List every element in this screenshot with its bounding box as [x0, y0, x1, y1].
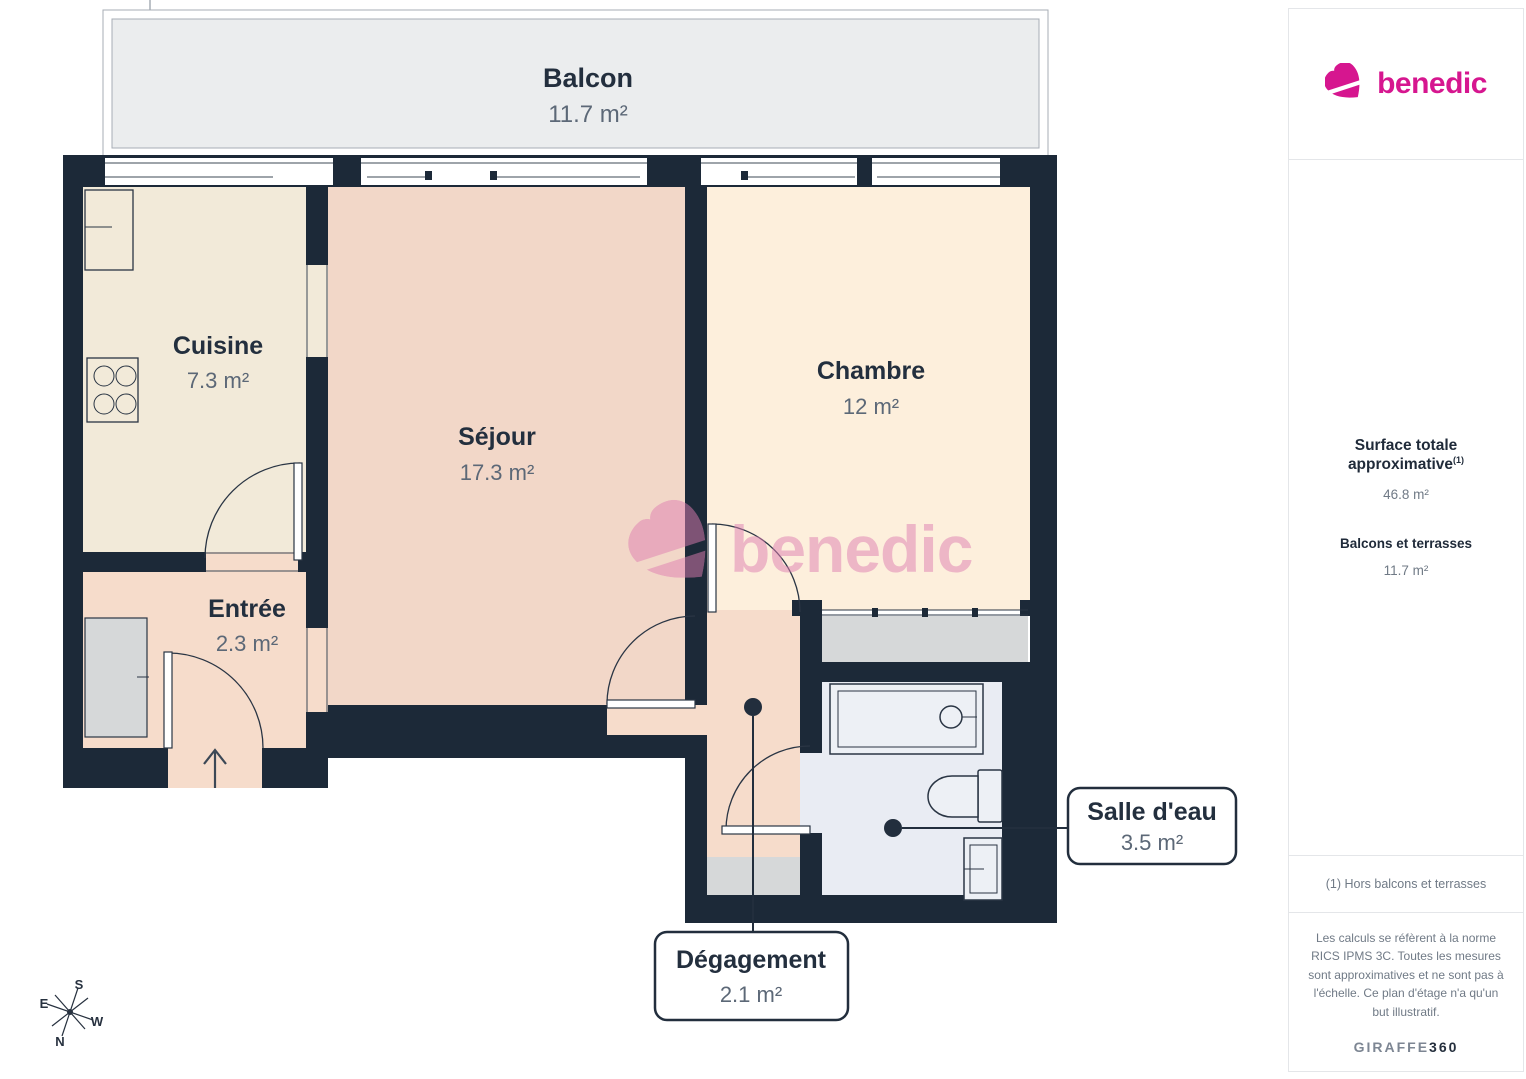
floorplan-page: Balcon 11.7 m²: [0, 0, 1526, 1079]
floorplan-drawing: Balcon 11.7 m²: [0, 0, 1288, 1079]
wardrobe-chambre: [822, 616, 1028, 662]
balcony-label: Balcon: [543, 63, 633, 93]
window-cuisine: [105, 158, 333, 185]
brand-header: benedic: [1289, 9, 1523, 160]
balcony-area-label: 11.7 m²: [548, 101, 628, 128]
bathtub-icon: [830, 684, 983, 754]
salle-deau-label: Salle d'eau: [1087, 798, 1217, 826]
stove-icon: [87, 358, 138, 422]
sejour-area: 17.3 m²: [460, 460, 535, 485]
compass-icon: S E W N: [40, 977, 104, 1049]
benedic-logo-icon: [1325, 63, 1367, 105]
salle-deau-area: 3.5 m²: [1121, 830, 1183, 855]
cuisine-area: 7.3 m²: [187, 368, 249, 393]
entree-label: Entrée: [208, 595, 286, 623]
footnote: (1) Hors balcons et terrasses: [1289, 856, 1523, 913]
compass-e: E: [40, 996, 49, 1011]
legal-section: Les calculs se réfèrent à la norme RICS …: [1289, 913, 1523, 1071]
entree-area: 2.3 m²: [216, 631, 278, 656]
chambre-label: Chambre: [817, 357, 925, 385]
cuisine-label: Cuisine: [173, 332, 263, 360]
balcony-total-value: 11.7 m²: [1384, 563, 1429, 578]
balcony-area: Balcon 11.7 m²: [103, 0, 1048, 157]
compass-w: W: [91, 1014, 104, 1029]
degagement-label: Dégagement: [676, 946, 827, 974]
giraffe-360: 360: [1429, 1039, 1458, 1055]
giraffe-text: GIRAFFE: [1354, 1039, 1429, 1055]
legal-text: Les calculs se réfèrent à la norme RICS …: [1307, 929, 1505, 1022]
compass-s: S: [75, 977, 84, 992]
watermark-text: benedic: [730, 512, 972, 586]
degagement-area: 2.1 m²: [720, 982, 782, 1007]
window-chambre-right: [872, 158, 1000, 185]
surface-total-footnote-mark: (1): [1453, 455, 1464, 465]
chambre-area: 12 m²: [843, 394, 899, 419]
counter-sink-icon: [85, 190, 133, 270]
window-chambre-left: [701, 158, 857, 185]
brand-name: benedic: [1377, 67, 1487, 101]
surface-total-title-text: Surface totale approximative: [1348, 437, 1457, 473]
surface-total-value: 46.8 m²: [1383, 487, 1429, 502]
giraffe360-brand: GIRAFFE360: [1354, 1039, 1459, 1055]
compass-n: N: [55, 1034, 64, 1049]
surface-total-title: Surface totale approximative(1): [1299, 437, 1513, 474]
sink-icon: [964, 838, 1002, 900]
info-sidebar: benedic Surface totale approximative(1) …: [1288, 8, 1524, 1072]
window-sejour: [361, 158, 647, 185]
sejour-label: Séjour: [458, 423, 536, 451]
balcony-total-title: Balcons et terrasses: [1340, 536, 1472, 551]
surface-summary: Surface totale approximative(1) 46.8 m² …: [1289, 160, 1523, 856]
